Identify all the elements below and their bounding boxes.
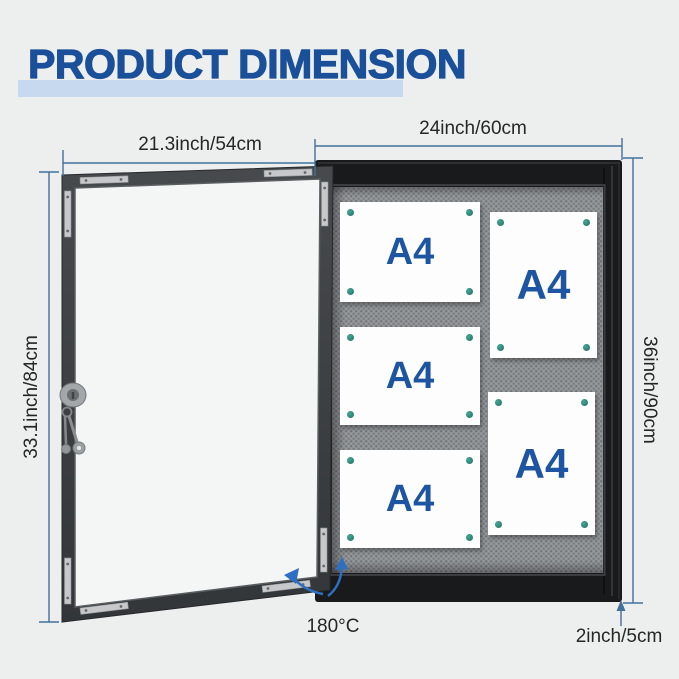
lock-icon [60,383,86,407]
depth-label: 2inch/5cm [549,626,679,648]
a4-paper: A4 [340,450,480,548]
pin-icon [466,457,473,464]
pin-icon [466,334,473,341]
pin-icon [581,399,588,406]
page-title: PRODUCT DIMENSION [28,41,466,88]
a4-paper-label: A4 [515,440,569,488]
a4-paper-label: A4 [517,261,571,309]
product-dimension-diagram: A4 A4 A4 A4 A4 PRODUCT DIMENSION 21.3inc… [0,0,679,679]
pin-icon [495,399,502,406]
door-width-label: 21.3inch/54cm [100,134,300,156]
a4-paper-label: A4 [386,478,435,521]
door-glass [75,179,320,607]
a4-paper: A4 [490,212,597,358]
a4-paper: A4 [340,327,480,425]
pin-icon [347,334,354,341]
pin-icon [466,209,473,216]
pin-icon [583,344,590,351]
board-width-label: 24inch/60cm [373,118,573,140]
pin-icon [347,411,354,418]
pin-icon [466,411,473,418]
pin-icon [466,288,473,295]
board-height-label: 36inch/90cm [636,290,660,490]
pin-icon [583,219,590,226]
a4-paper-label: A4 [386,355,435,398]
pin-icon [347,209,354,216]
pin-icon [581,521,588,528]
pin-icon [347,457,354,464]
pin-icon [347,534,354,541]
open-angle-label: 180°C [263,616,403,638]
pin-icon [466,534,473,541]
door-frame [60,166,333,622]
door-height-label: 33.1inch/84cm [21,297,45,497]
pin-icon [497,344,504,351]
a4-paper-label: A4 [386,231,435,274]
pin-icon [347,288,354,295]
a4-paper: A4 [488,392,595,535]
pin-icon [495,521,502,528]
pin-icon [497,219,504,226]
a4-paper: A4 [340,202,480,302]
